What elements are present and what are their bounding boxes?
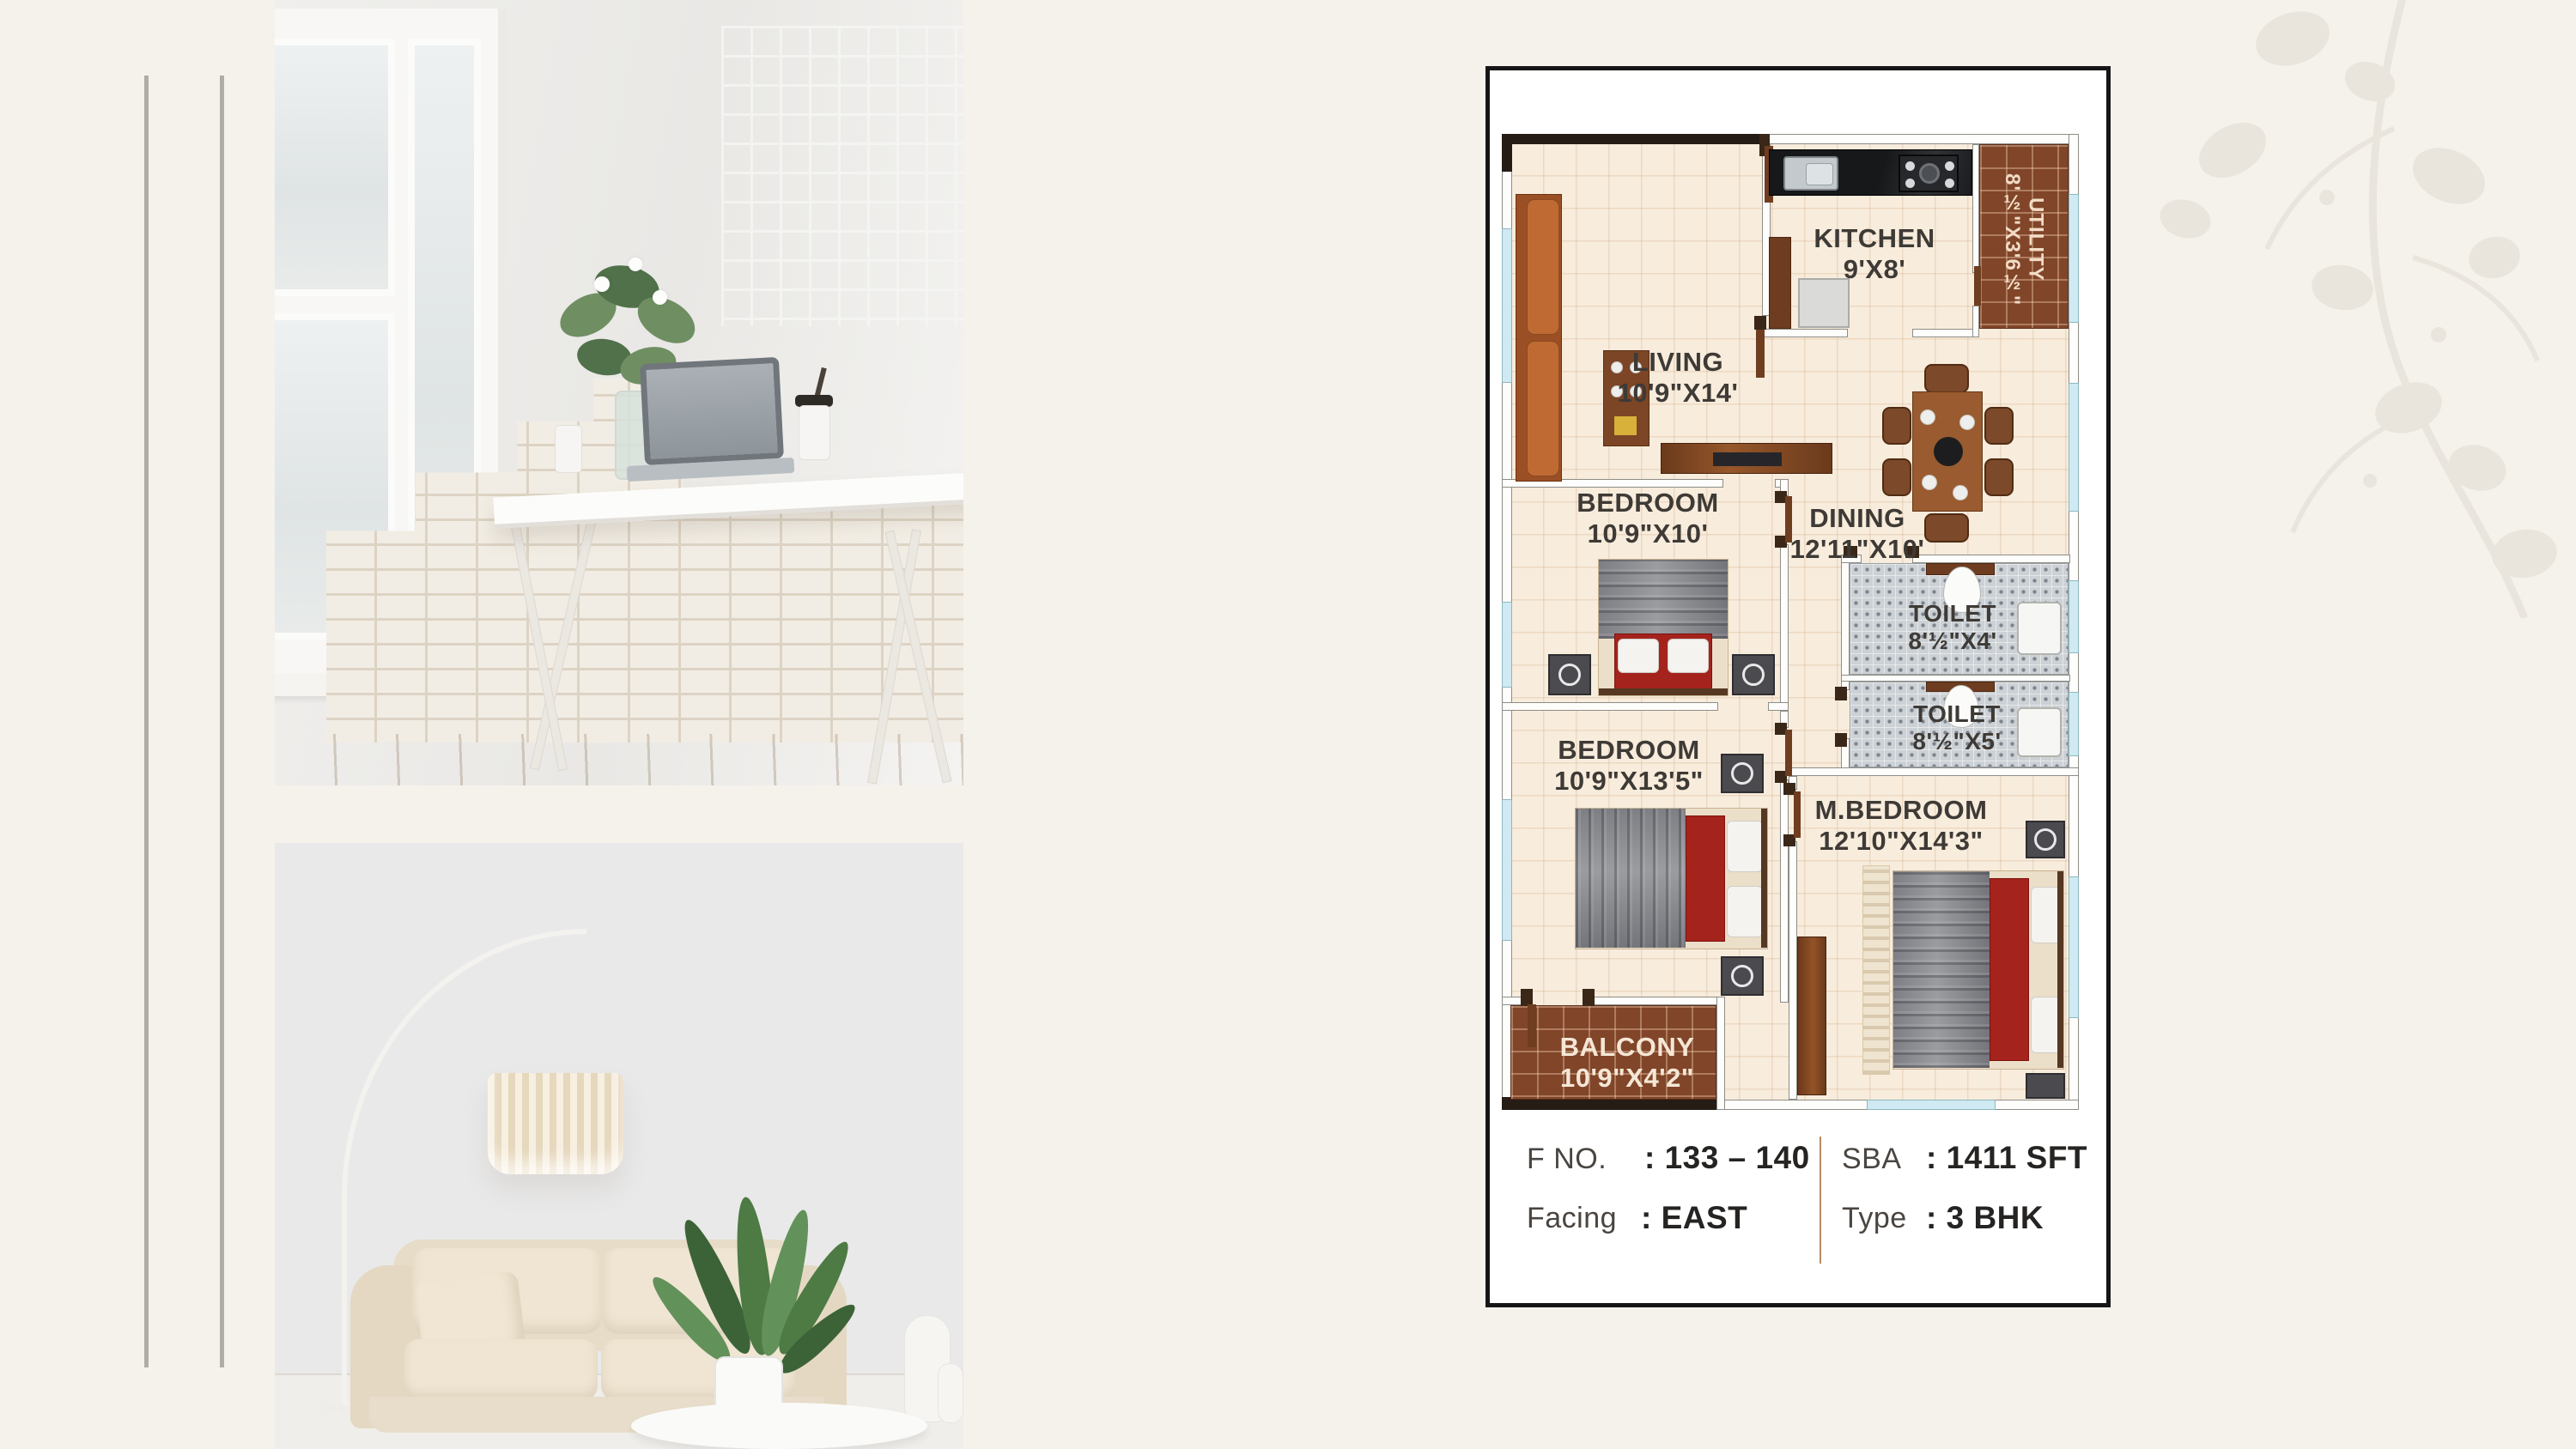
room-name: BEDROOM <box>1554 735 1704 766</box>
facing-value: : EAST <box>1641 1200 1747 1236</box>
wall-toilet1-top-b <box>1912 555 2070 563</box>
bed-blanket <box>1599 560 1728 639</box>
room-size: 9'X8' <box>1814 254 1935 285</box>
lamp-shade <box>488 1073 623 1174</box>
window-toilet1 <box>2069 580 2079 653</box>
room-name: KITCHEN <box>1814 223 1935 254</box>
room-name: UTILITY <box>2024 158 2048 321</box>
burner <box>1905 179 1915 188</box>
bedroom2-bed <box>1575 808 1768 949</box>
window-utility <box>2069 194 2079 323</box>
dining-chair <box>1924 364 1969 393</box>
white-flower <box>653 290 667 305</box>
wall-bed1-bed2-b <box>1768 702 1789 711</box>
lamp-ring <box>1558 664 1581 686</box>
kitchen-stove <box>1899 155 1959 192</box>
window-toilet2 <box>2069 692 2079 756</box>
bed-blanket <box>1576 809 1686 948</box>
accent-line-right <box>220 76 224 1367</box>
door-jamb <box>1521 989 1533 1006</box>
window-dining <box>2069 383 2079 512</box>
accent-line-left <box>144 76 149 1367</box>
nightstand <box>1721 956 1764 996</box>
dining-chair <box>1882 458 1911 496</box>
room-size: 10'9"X4'2" <box>1560 1063 1695 1094</box>
bed-pillow <box>1618 639 1659 673</box>
wall-kitchen-bottom-b <box>1912 329 1979 337</box>
room-label-dining: DINING 12'11"X10' <box>1790 503 1925 565</box>
wall-bed2-right-b <box>1780 779 1789 1003</box>
flat-no-value: : 133 – 140 <box>1644 1140 1810 1176</box>
dining-chair <box>1924 513 1969 543</box>
wall-kitchen-utility-b <box>1972 306 1979 337</box>
white-flower <box>594 276 610 292</box>
wall-top-dark <box>1502 134 1759 144</box>
mbedroom-bed <box>1893 870 2064 1070</box>
room-label-toilet1: TOILET 8'½"X4' <box>1908 600 1996 656</box>
floorplan-card: LIVING 10'9"X14' KITCHEN 9'X8' UTILITY 8… <box>1485 66 2111 1307</box>
door-jamb <box>1583 989 1595 1006</box>
lamp-ring <box>1731 762 1753 785</box>
window-glass-upper <box>275 39 395 296</box>
door-jamb <box>1835 733 1847 747</box>
bed-pillow <box>1668 639 1709 673</box>
room-label-kitchen: KITCHEN 9'X8' <box>1814 223 1935 285</box>
wire-grid-board <box>721 26 963 326</box>
white-flower <box>629 258 642 271</box>
room-name: TOILET <box>1908 600 1996 627</box>
decor-vase-small <box>938 1363 963 1423</box>
room-name: DINING <box>1790 503 1925 534</box>
lamp-ring <box>1731 965 1753 987</box>
bed-pillow <box>1727 821 1763 872</box>
bed-blanket <box>1893 871 1990 1068</box>
wardrobe <box>1797 937 1826 1095</box>
room-size: 12'11"X10' <box>1790 534 1925 565</box>
bedroom2-door-leaf <box>1785 730 1792 776</box>
balcony-door-leaf <box>1528 1004 1536 1047</box>
wall-toilets-left-a <box>1841 555 1850 690</box>
wall-kitchen-bottom-a <box>1762 329 1848 337</box>
door-jamb <box>1835 687 1847 700</box>
wall-balcony-b <box>1584 997 1725 1005</box>
info-divider <box>1820 1137 1821 1264</box>
living-room-photo <box>275 843 963 1449</box>
burner-large <box>1919 163 1940 184</box>
flat-no-label: F NO. <box>1527 1143 1607 1176</box>
serving-platter <box>1934 437 1963 466</box>
room-label-balcony: BALCONY 10'9"X4'2" <box>1560 1032 1695 1094</box>
wall-bed1-right-b <box>1780 544 1789 709</box>
plate <box>1959 415 1975 430</box>
window-mbedroom <box>2069 876 2079 1018</box>
headboard <box>1761 809 1767 948</box>
bed-pillow <box>1727 886 1763 937</box>
burner <box>1945 179 1954 188</box>
sofa-cushion <box>1527 199 1559 335</box>
dining-chair <box>1984 458 2014 496</box>
room-size: 12'10"X14'3" <box>1815 826 1988 857</box>
room-name: M.BEDROOM <box>1815 795 1988 826</box>
wall-mbed-top <box>1789 767 2079 776</box>
plate <box>1922 475 1937 490</box>
sba-value: : 1411 SFT <box>1926 1140 2087 1176</box>
bedroom1-bed <box>1598 559 1728 696</box>
headboard <box>1599 688 1728 695</box>
facing-label: Facing <box>1527 1202 1617 1235</box>
room-size: 10'9"X10' <box>1577 518 1718 549</box>
laptop-screen <box>640 357 784 465</box>
headboard <box>2057 871 2063 1068</box>
fridge <box>1798 278 1850 328</box>
room-name: LIVING <box>1618 347 1739 378</box>
mbedroom-door-leaf <box>1794 791 1801 838</box>
door-jamb <box>1754 316 1766 330</box>
nightstand <box>2026 1073 2065 1099</box>
room-name: BALCONY <box>1560 1032 1695 1063</box>
wall-bed1-bed2-a <box>1502 702 1718 711</box>
lamp-ring <box>1742 664 1765 686</box>
sba-label: SBA <box>1842 1143 1902 1176</box>
window-mbedroom-bottom <box>1867 1100 1996 1110</box>
type-label: Type <box>1842 1202 1907 1235</box>
plate <box>1953 485 1968 500</box>
wall-left-dark <box>1502 134 1512 172</box>
floorplan-drawing: LIVING 10'9"X14' KITCHEN 9'X8' UTILITY 8… <box>1502 134 2079 1110</box>
room-label-bedroom2: BEDROOM 10'9"X13'5" <box>1554 735 1704 797</box>
room-label-mbedroom: M.BEDROOM 12'10"X14'3" <box>1815 795 1988 857</box>
nightstand <box>2026 821 2065 858</box>
plate <box>1920 409 1935 425</box>
tv <box>1713 452 1782 466</box>
window-living <box>1502 228 1512 383</box>
sofa <box>1516 194 1562 482</box>
room-size: 8'½"X3'6½" <box>2000 158 2024 321</box>
coffee-cup <box>799 405 830 460</box>
kitchen-sink <box>1783 156 1838 191</box>
bed-spread <box>1990 878 2029 1061</box>
wall-balcony-right <box>1716 997 1725 1110</box>
room-name: BEDROOM <box>1577 488 1718 518</box>
wall-mbed-left-b <box>1789 841 1797 1100</box>
nightstand <box>1732 654 1775 695</box>
coffee-table <box>631 1403 927 1449</box>
table-mat <box>1614 416 1637 435</box>
sink-basin <box>1806 163 1833 185</box>
window-bedroom2 <box>1502 799 1512 941</box>
burner <box>1905 161 1915 171</box>
wall-toilet-divider <box>1841 675 2070 682</box>
room-name: TOILET <box>1912 700 2001 728</box>
dining-chair <box>1984 407 2014 445</box>
room-size: 10'9"X14' <box>1618 378 1739 409</box>
dining-chair <box>1882 407 1911 445</box>
toilet1-shower <box>2017 602 2062 655</box>
room-size: 8'½"X4' <box>1908 627 1996 655</box>
lamp-ring <box>2034 828 2057 851</box>
dining-table <box>1912 391 1983 512</box>
room-label-toilet2: TOILET 8'½"X5' <box>1912 700 2001 756</box>
pencil-cup <box>555 425 582 473</box>
room-label-utility: UTILITY 8'½"X3'6½" <box>2000 158 2048 321</box>
sofa-seat-cushion <box>404 1339 598 1401</box>
nightstand <box>1548 654 1591 695</box>
room-label-living: LIVING 10'9"X14' <box>1618 347 1739 409</box>
type-value: : 3 BHK <box>1926 1200 2044 1236</box>
brochure-page: { "canvas": { "background": "#f5f2ec" },… <box>0 0 2576 1449</box>
wall-kitchen-utility-a <box>1972 144 1979 273</box>
room-label-bedroom1: BEDROOM 10'9"X10' <box>1577 488 1718 549</box>
utility-door-leaf <box>1974 266 1981 306</box>
room-size: 8'½"X5' <box>1912 728 2001 755</box>
toilet2-shower <box>2017 707 2062 757</box>
kitchen-cabinet <box>1769 237 1791 329</box>
nightstand <box>1721 754 1764 793</box>
sofa-cushion <box>1527 341 1559 476</box>
bed-spread <box>1686 815 1725 942</box>
window-bedroom1 <box>1502 602 1512 688</box>
wood-floor <box>275 734 963 785</box>
mbedroom-rug <box>1862 865 1890 1075</box>
tv-console <box>1661 443 1832 474</box>
kitchen-door-leaf <box>1756 330 1765 378</box>
burner <box>1945 161 1954 171</box>
room-size: 10'9"X13'5" <box>1554 766 1704 797</box>
office-photo <box>275 0 963 785</box>
